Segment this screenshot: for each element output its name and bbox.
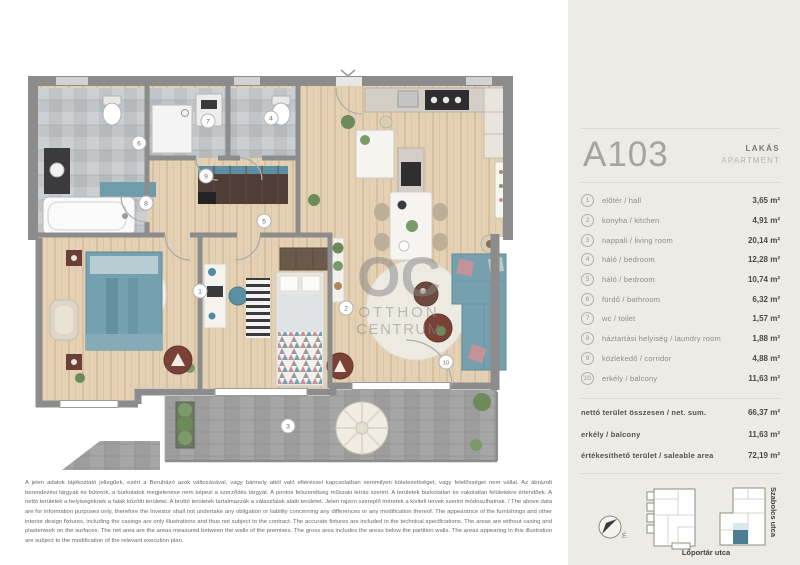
divider [581, 182, 780, 183]
building-b [720, 488, 765, 545]
brochure-page: OC OTTHON CENTRUM 12345678910 A jelen ad… [0, 0, 800, 565]
room-marker-number: 1 [198, 288, 202, 295]
doormat [198, 192, 216, 204]
room-marker-number: 5 [262, 218, 266, 225]
balcony-floor [165, 390, 497, 461]
total-value: 66,37 m² [748, 408, 780, 417]
terrace-pad [62, 441, 160, 470]
divider [581, 473, 780, 474]
room-area: 4,91 m² [752, 216, 780, 225]
wardrobe [280, 248, 330, 270]
room-number-badge: 8 [581, 332, 594, 345]
room-number-badge: 5 [581, 273, 594, 286]
room-number-badge: 4 [581, 253, 594, 266]
entry-chevron [341, 70, 355, 76]
total-label: értékesíthető terület / saleable area [581, 451, 748, 460]
room-row: 7wc / toilet1,57 m² [581, 309, 780, 329]
room-area: 20,14 m² [748, 236, 780, 245]
room-marker-number: 9 [204, 173, 208, 180]
floor-plan: OC OTTHON CENTRUM 12345678910 [0, 0, 568, 478]
pillow [456, 259, 474, 277]
total-label: nettó terület összesen / net. sum. [581, 408, 748, 417]
room-list: 1előtér / hall3,65 m²2konyha / kitchen4,… [581, 191, 780, 388]
room-row: 1előtér / hall3,65 m² [581, 191, 780, 211]
room-number-badge: 9 [581, 352, 594, 365]
total-row: nettó terület összesen / net. sum.66,37 … [581, 402, 780, 424]
room-row: 6fürdő / bathroom6,32 m² [581, 289, 780, 309]
totals-list: nettó terület összesen / net. sum.66,37 … [581, 402, 780, 467]
plant [470, 439, 482, 451]
room-row: 10erkély / balcony11,63 m² [581, 368, 780, 388]
shower-tray [152, 105, 192, 153]
room-number-badge: 10 [581, 372, 594, 385]
room-row: 3nappali / living room20,14 m² [581, 230, 780, 250]
room-label: közlekedő / corridor [602, 354, 752, 363]
room-row: 4háló / bedroom12,28 m² [581, 250, 780, 270]
striped-rug [246, 278, 270, 338]
room-number-badge: 7 [581, 312, 594, 325]
building-a [647, 489, 695, 549]
watermark-otthon: OTTHON [358, 304, 439, 321]
plant [473, 393, 491, 411]
room-marker-number: 3 [286, 423, 290, 430]
room-area: 11,63 m² [748, 374, 780, 383]
sidebar: A103 LAKÁS APARTMENT 1előtér / hall3,65 … [568, 0, 800, 565]
watermark: OC OTTHON CENTRUM [356, 245, 442, 338]
room-area: 1,88 m² [752, 334, 780, 343]
divider [581, 398, 780, 399]
room-marker-number: 10 [443, 360, 449, 366]
room-area: 6,32 m² [752, 295, 780, 304]
room-area: 3,65 m² [752, 196, 780, 205]
room-label: wc / toilet [602, 314, 752, 323]
total-value: 11,63 m² [748, 430, 780, 439]
room-label: konyha / kitchen [602, 216, 752, 225]
room-number-badge: 1 [581, 194, 594, 207]
compass: É [599, 516, 627, 540]
adjacent-unit [733, 523, 748, 530]
room-area: 10,74 m² [748, 275, 780, 284]
room-marker-number: 2 [344, 305, 348, 312]
total-row: erkély / balcony11,63 m² [581, 424, 780, 446]
room-marker-number: 4 [269, 115, 273, 122]
room-area: 4,88 m² [752, 354, 780, 363]
disclaimer-text: A jelen adatok tájékoztató jellegűek, ez… [25, 479, 552, 547]
total-label: erkély / balcony [581, 430, 748, 439]
highlighted-unit [733, 530, 748, 544]
unit-type-en: APARTMENT [722, 156, 781, 165]
site-map: É Lőportár utca Szabolcs utca [568, 475, 800, 565]
room-label: háló / bedroom [602, 255, 748, 264]
street-label-right: Szabolcs utca [769, 487, 778, 538]
room-label: fürdő / bathroom [602, 295, 752, 304]
unit-type-hu: LAKÁS [722, 144, 781, 153]
room-label: előtér / hall [602, 196, 752, 205]
total-row: értékesíthető terület / saleable area72,… [581, 445, 780, 467]
watermark-centrum: CENTRUM [356, 321, 442, 338]
divider [581, 128, 780, 129]
room-row: 8háztartási helyiség / laundry room1,88 … [581, 329, 780, 349]
desk-chair [229, 287, 247, 305]
room-marker-number: 8 [144, 200, 148, 207]
room-row: 9közlekedő / corridor4,88 m² [581, 349, 780, 369]
room-label: háztartási helyiség / laundry room [602, 334, 752, 343]
kitchen-sink [398, 91, 418, 107]
total-value: 72,19 m² [748, 451, 780, 460]
room-marker-number: 7 [206, 118, 210, 125]
watermark-oc: OC [357, 245, 441, 308]
room-area: 1,57 m² [752, 314, 780, 323]
unit-type: LAKÁS APARTMENT [722, 144, 781, 165]
toilet [103, 103, 121, 125]
room-row: 2konyha / kitchen4,91 m² [581, 211, 780, 231]
room-marker-number: 6 [137, 140, 141, 147]
room-row: 5háló / bedroom10,74 m² [581, 270, 780, 290]
entry-door-gap [336, 77, 362, 86]
room-label: nappali / living room [602, 236, 748, 245]
room-label: háló / bedroom [602, 275, 748, 284]
room-area: 12,28 m² [748, 255, 780, 264]
plant [341, 115, 355, 129]
room-number-badge: 3 [581, 234, 594, 247]
unit-id: A103 [583, 135, 669, 175]
room-number-badge: 2 [581, 214, 594, 227]
room-label: erkély / balcony [602, 374, 748, 383]
street-label-bottom: Lőportár utca [682, 548, 731, 557]
room-number-badge: 6 [581, 293, 594, 306]
compass-label: É [622, 531, 627, 540]
